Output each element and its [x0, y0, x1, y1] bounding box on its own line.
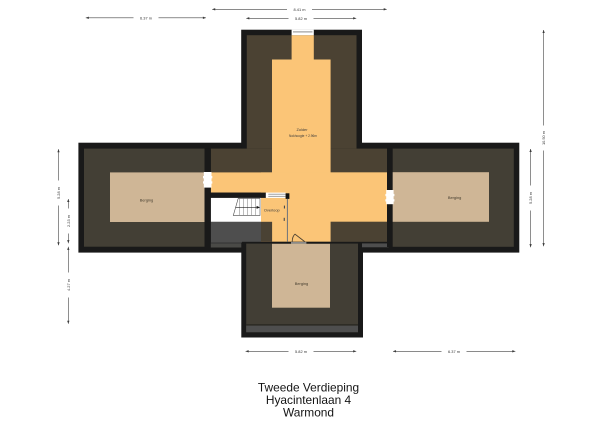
- svg-text:4.27 m: 4.27 m: [66, 279, 71, 291]
- svg-text:6.37 m: 6.37 m: [448, 349, 460, 354]
- svg-text:5.82 m: 5.82 m: [295, 349, 307, 354]
- svg-text:Warmond: Warmond: [283, 406, 334, 420]
- svg-text:2.23 m: 2.23 m: [66, 215, 71, 227]
- svg-text:5.28 m: 5.28 m: [56, 187, 61, 199]
- svg-text:Berging: Berging: [140, 197, 153, 202]
- svg-text:8.41 m: 8.41 m: [294, 7, 306, 12]
- svg-text:5.28 m: 5.28 m: [528, 192, 533, 204]
- svg-text:Berging: Berging: [448, 195, 461, 200]
- svg-text:Overloop: Overloop: [264, 207, 280, 212]
- svg-text:5.82 m: 5.82 m: [295, 16, 307, 21]
- svg-text:10.50 m: 10.50 m: [541, 131, 546, 145]
- svg-text:Berging: Berging: [295, 281, 308, 286]
- svg-text:6.37 m: 6.37 m: [140, 15, 152, 20]
- svg-text:Zolder: Zolder: [296, 127, 308, 132]
- svg-text:Nokhoogte + 2.96m: Nokhoogte + 2.96m: [289, 134, 317, 138]
